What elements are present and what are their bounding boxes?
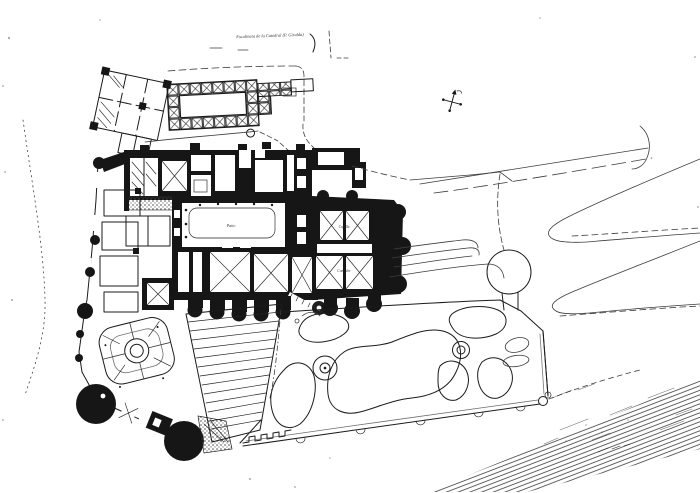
north-range [124,142,310,200]
southwest-square-tower [142,278,174,310]
plan-scan: Escalinata de la Catedral (P. Giralda) [0,0,700,493]
east-pier-wall [294,150,312,253]
east-room-upper-label: Capilla [339,225,350,229]
central-courtyard: Patio [172,196,295,253]
site-plan-drawing: Escalinata de la Catedral (P. Giralda) [0,0,700,493]
east-room-lower-label: Comedor [337,269,351,273]
courtyard-label: Patio [226,223,236,228]
